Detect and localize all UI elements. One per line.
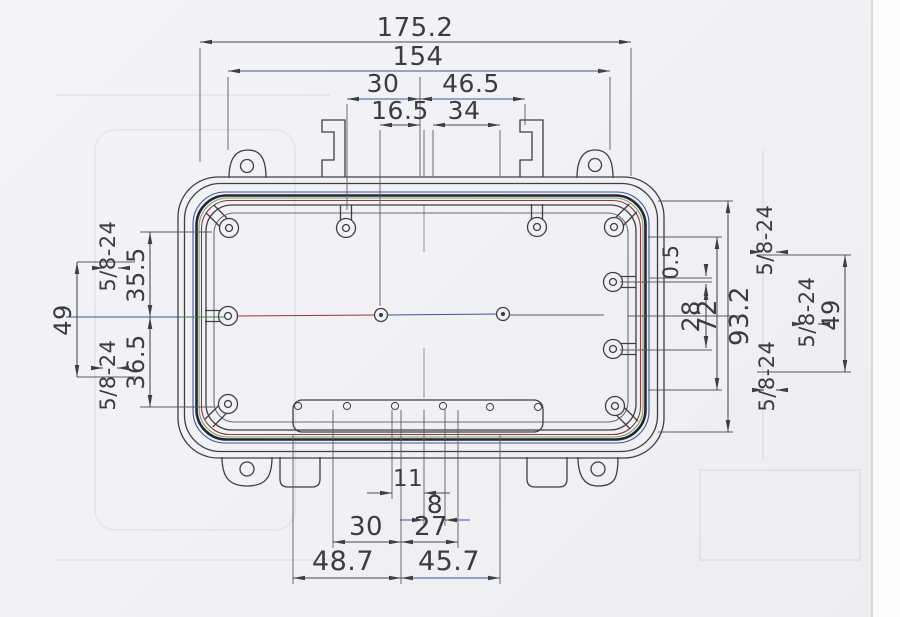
dim-left-49: 49 (49, 262, 77, 377)
dim-bottom-48-7: 48.7 (293, 546, 401, 578)
latch-clip-right (520, 120, 543, 177)
dim-label-bottom-45-7: 45.7 (418, 546, 480, 577)
lid-screw-hole-right (497, 308, 510, 321)
mounting-hole-icon (591, 462, 605, 476)
dim-label-bottom-48-7: 48.7 (312, 546, 374, 577)
scan-page-edge (872, 0, 900, 617)
dim-right-93-2: 93.2 (725, 201, 755, 432)
terminal-slot (293, 400, 543, 432)
screw-boss-left-wall (205, 307, 238, 326)
dim-label-top-46-5: 46.5 (442, 69, 500, 98)
dim-right-72: 72 (693, 237, 723, 390)
scanned-technical-drawing-page: 175.2 154 30 46.5 16.5 34 49 5/8-24 35.5… (0, 0, 900, 617)
bottom-tab-right (527, 457, 567, 487)
mounting-ear-bottom-right (578, 457, 618, 486)
dim-label-top-16-5: 16.5 (371, 96, 429, 125)
dim-label-left-36-5: 36.5 (122, 334, 150, 389)
dim-label-left-35-5: 35.5 (122, 247, 150, 302)
mounting-ear-bottom-left (222, 457, 272, 486)
slot-hole (534, 403, 541, 410)
slot-hole (391, 402, 398, 409)
dim-top-30: 30 (347, 69, 420, 99)
slot-hole (439, 402, 446, 409)
dim-label-bottom-30: 30 (349, 512, 383, 542)
dim-top-34: 34 (433, 96, 500, 125)
mounting-hole-icon (240, 462, 254, 476)
dim-label-left-49: 49 (49, 304, 77, 336)
latch-clip-left (322, 120, 345, 177)
mounting-hole-icon (241, 160, 254, 173)
screw-boss-top-left-wall (337, 205, 356, 238)
dim-left-36-5: 36.5 (122, 317, 150, 407)
dim-label-bottom-27: 27 (414, 512, 448, 542)
dim-top-46-5: 46.5 (420, 69, 525, 99)
screw-boss-right-wall-lower (604, 340, 637, 359)
mounting-ear-top-left (229, 150, 266, 178)
enclosure-dimension-drawing: 175.2 154 30 46.5 16.5 34 49 5/8-24 35.5… (0, 0, 900, 617)
dim-bottom-27: 27 (401, 512, 458, 542)
dim-label-top-34: 34 (448, 96, 481, 125)
dim-label-top-30: 30 (367, 69, 400, 98)
callout-thread-right-lower: 5/8-24 (754, 340, 786, 411)
screw-boss-corner-top-left (203, 202, 242, 241)
slot-hole (343, 402, 350, 409)
dim-top-overall-width: 175.2 (200, 13, 631, 43)
mounting-hole-icon (589, 159, 602, 172)
dim-top-16-5: 16.5 (371, 96, 429, 125)
slot-hole (486, 403, 493, 410)
bottom-tab-left (280, 457, 320, 487)
thread-label-left-upper: 5/8-24 (96, 220, 120, 291)
dim-label-overall-width: 175.2 (377, 13, 454, 43)
dim-label-bottom-11: 11 (393, 466, 423, 492)
dim-label-right-0-5: 0.5 (659, 245, 683, 280)
dim-bottom-45-7: 45.7 (401, 546, 500, 578)
dim-right-49: 49 (817, 255, 845, 372)
dim-bottom-30: 30 (333, 512, 401, 542)
mounting-ear-top-right (577, 150, 613, 178)
thread-label-right-outer: 5/8-24 (795, 276, 819, 347)
dim-bottom-11: 11 (367, 466, 450, 493)
enclosure-rim-outlines (178, 177, 664, 458)
dim-label-right-93-2: 93.2 (725, 286, 755, 346)
thread-label-left-lower: 5/8-24 (96, 339, 120, 410)
callout-thread-right-upper: 5/8-24 (752, 204, 786, 275)
dim-label-right-72: 72 (693, 299, 723, 333)
dim-left-35-5: 35.5 (122, 232, 150, 317)
lid-screw-hole-left (375, 309, 388, 322)
enclosure-body (66, 120, 745, 487)
thread-label-right-upper: 5/8-24 (753, 204, 777, 275)
thread-label-right-lower: 5/8-24 (755, 340, 779, 411)
screw-boss-top-right-wall (528, 204, 547, 237)
dim-label-flange-width: 154 (392, 42, 443, 72)
dim-top-flange-width: 154 (228, 42, 610, 72)
dim-right-0-5: 0.5 (659, 245, 706, 298)
dim-label-right-49: 49 (817, 299, 845, 331)
